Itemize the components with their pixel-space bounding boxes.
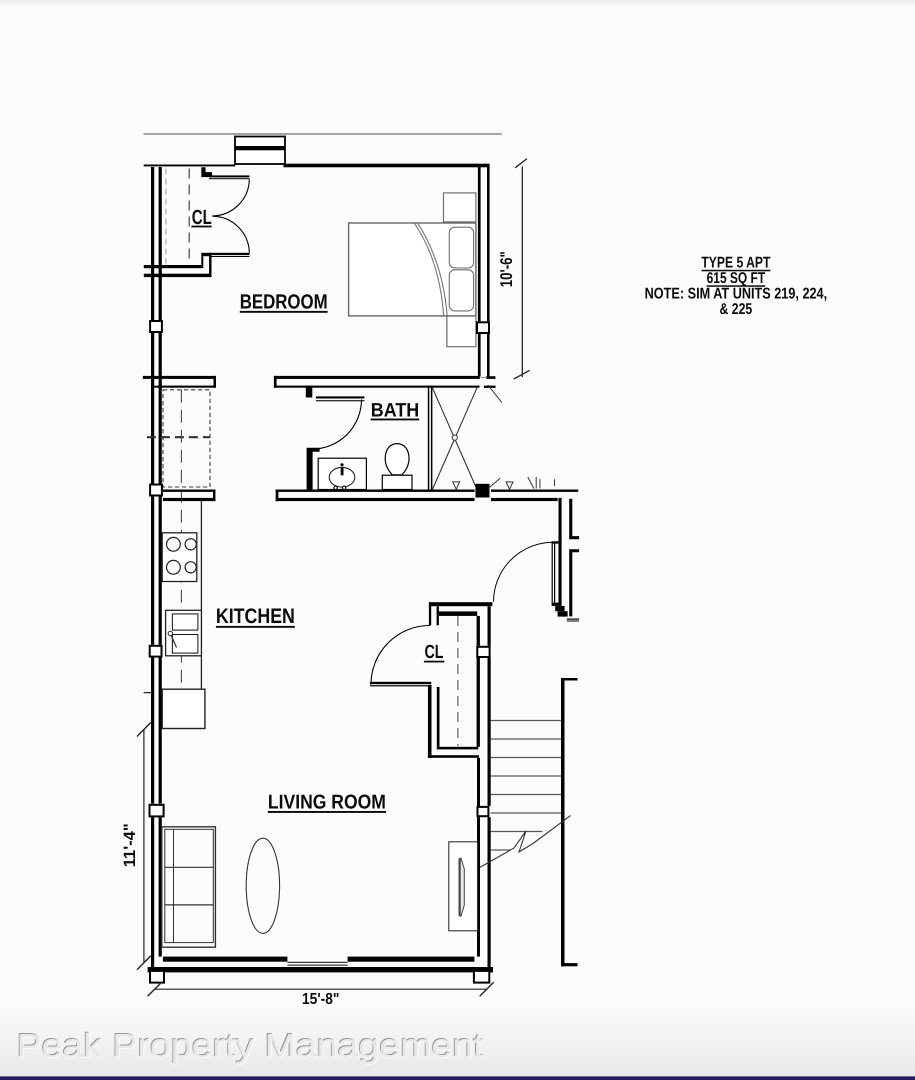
svg-text:10'-6": 10'-6" <box>497 251 516 287</box>
svg-text:15'-8": 15'-8" <box>302 991 339 1008</box>
svg-text:CL: CL <box>425 642 444 663</box>
svg-text:TYPE 5 APT: TYPE 5 APT <box>701 254 770 271</box>
svg-text:Peak Property Management: Peak Property Management <box>17 1028 485 1065</box>
svg-text:BATH: BATH <box>371 399 420 421</box>
svg-text:11'-4": 11'-4" <box>121 823 139 867</box>
svg-text:KITCHEN: KITCHEN <box>216 605 295 628</box>
svg-text:CL: CL <box>192 206 212 229</box>
svg-text:LIVING ROOM: LIVING ROOM <box>268 792 386 814</box>
svg-text:615 SQ FT: 615 SQ FT <box>707 270 766 287</box>
svg-text:NOTE: SIM AT UNITS 219, 224,: NOTE: SIM AT UNITS 219, 224, <box>645 285 828 302</box>
svg-text:BEDROOM: BEDROOM <box>240 291 328 314</box>
svg-text:& 225: & 225 <box>720 301 753 318</box>
